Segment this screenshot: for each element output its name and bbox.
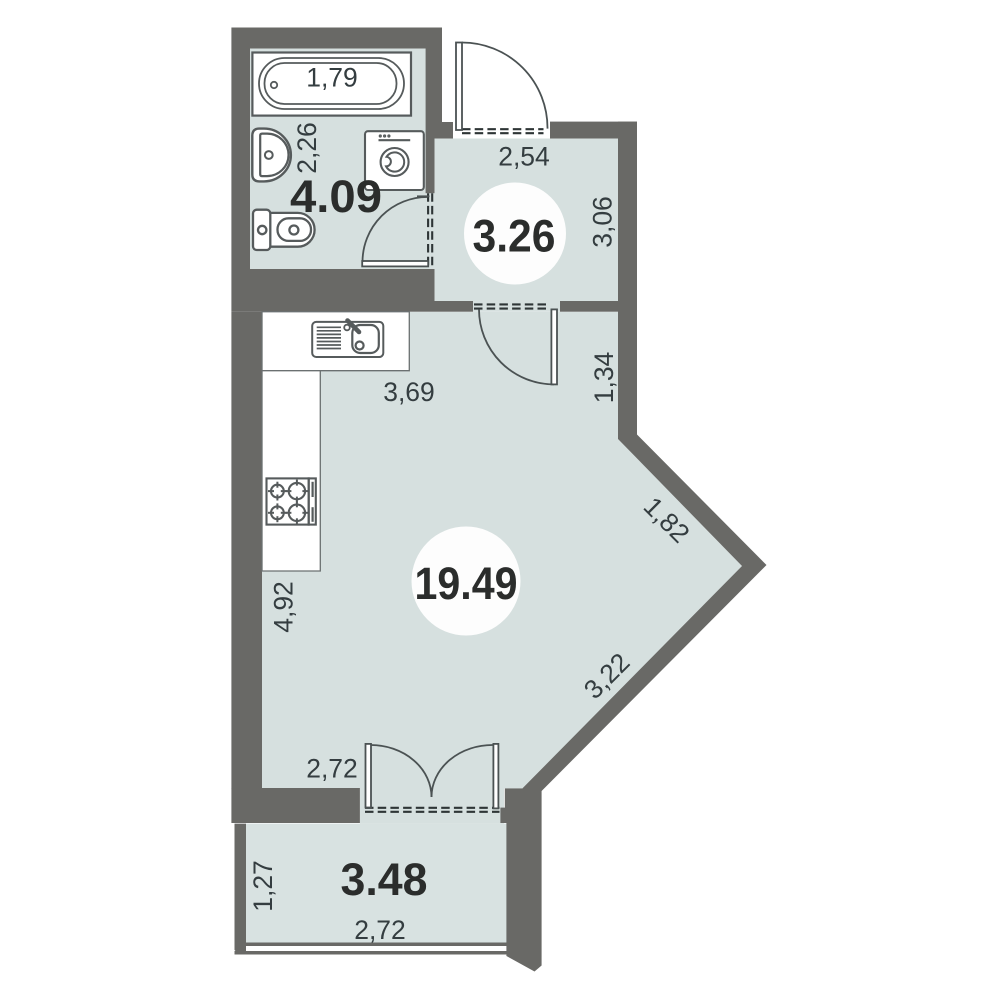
svg-text:2,72: 2,72 [306,754,358,784]
svg-text:1,34: 1,34 [589,352,619,404]
svg-text:4.09: 4.09 [290,171,382,222]
svg-text:3.26: 3.26 [473,211,556,262]
svg-text:1,79: 1,79 [306,63,358,93]
svg-text:2,26: 2,26 [292,122,322,174]
svg-text:3,06: 3,06 [588,196,618,248]
svg-text:2,72: 2,72 [354,915,406,945]
svg-text:4,92: 4,92 [269,581,299,633]
svg-text:3.48: 3.48 [341,854,428,905]
svg-text:1,27: 1,27 [248,860,278,912]
svg-text:19.49: 19.49 [415,558,518,609]
svg-text:3,69: 3,69 [383,377,435,407]
svg-text:2,54: 2,54 [498,142,550,172]
